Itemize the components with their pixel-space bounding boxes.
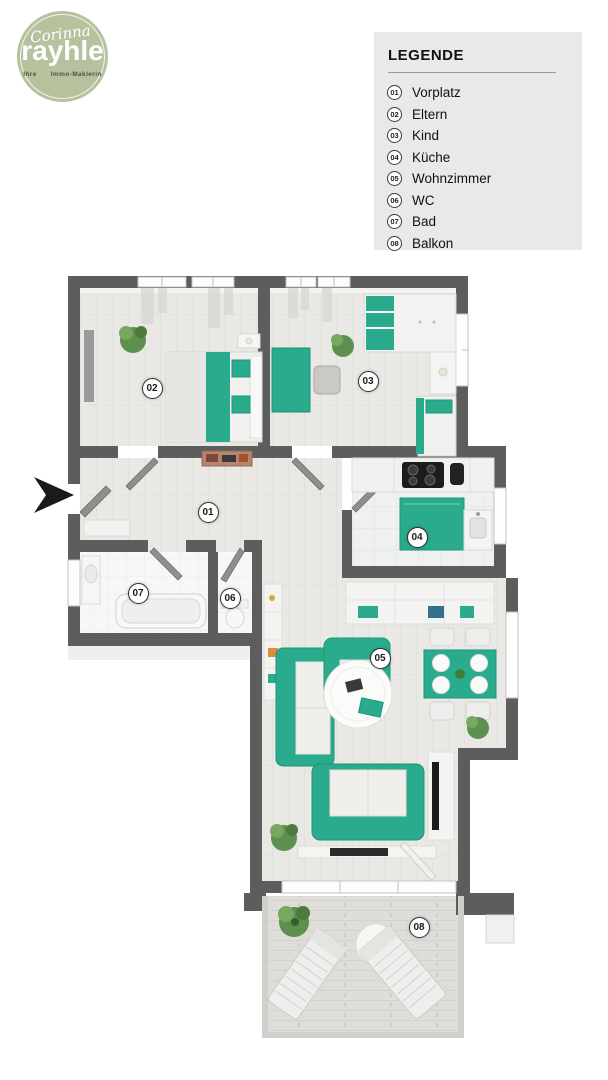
room-marker-vorplatz: 01 (198, 502, 219, 523)
sofa-bottom (312, 764, 424, 840)
sink (85, 565, 97, 583)
room-marker-kueche: 04 (407, 527, 428, 548)
floorplan-page: Corinna rayhle Ihre Immo-Maklerin LEGEND… (0, 0, 608, 1080)
hall-bench (84, 520, 130, 536)
nightstand (238, 334, 260, 348)
room-marker-number: 07 (132, 588, 143, 599)
room-marker-number: 05 (374, 653, 385, 664)
room-marker-number: 02 (146, 383, 157, 394)
room-marker-wc: 06 (220, 588, 241, 609)
sink-unit (464, 510, 492, 550)
room-marker-kind: 03 (358, 371, 379, 392)
cooktop (402, 462, 444, 488)
kids-bed (416, 396, 456, 456)
room-marker-balkon: 08 (409, 917, 430, 938)
room-marker-wohnzimmer: 05 (370, 648, 391, 669)
room-marker-number: 08 (413, 922, 424, 933)
room-marker-eltern: 02 (142, 378, 163, 399)
toilet-bowl (226, 608, 244, 628)
balcony-column (486, 915, 514, 943)
floorplan-drawing (0, 0, 608, 1080)
faucet (450, 463, 464, 485)
cabinet-knob (439, 368, 447, 376)
desk (272, 348, 310, 412)
tv (432, 762, 439, 830)
double-bed (166, 352, 262, 442)
tv-sideboard (428, 752, 454, 840)
room-marker-number: 01 (202, 507, 213, 518)
coffee-table (324, 660, 392, 728)
bookshelf-top (346, 582, 494, 624)
dresser (84, 330, 94, 402)
wall-outer-face (68, 646, 262, 660)
desk-chair (314, 366, 340, 394)
wardrobe (364, 294, 456, 352)
room-marker-number: 04 (411, 532, 422, 543)
room-marker-number: 03 (362, 376, 373, 387)
gold-decor (269, 595, 275, 601)
room-marker-number: 06 (224, 593, 235, 604)
room-marker-bad: 07 (128, 583, 149, 604)
